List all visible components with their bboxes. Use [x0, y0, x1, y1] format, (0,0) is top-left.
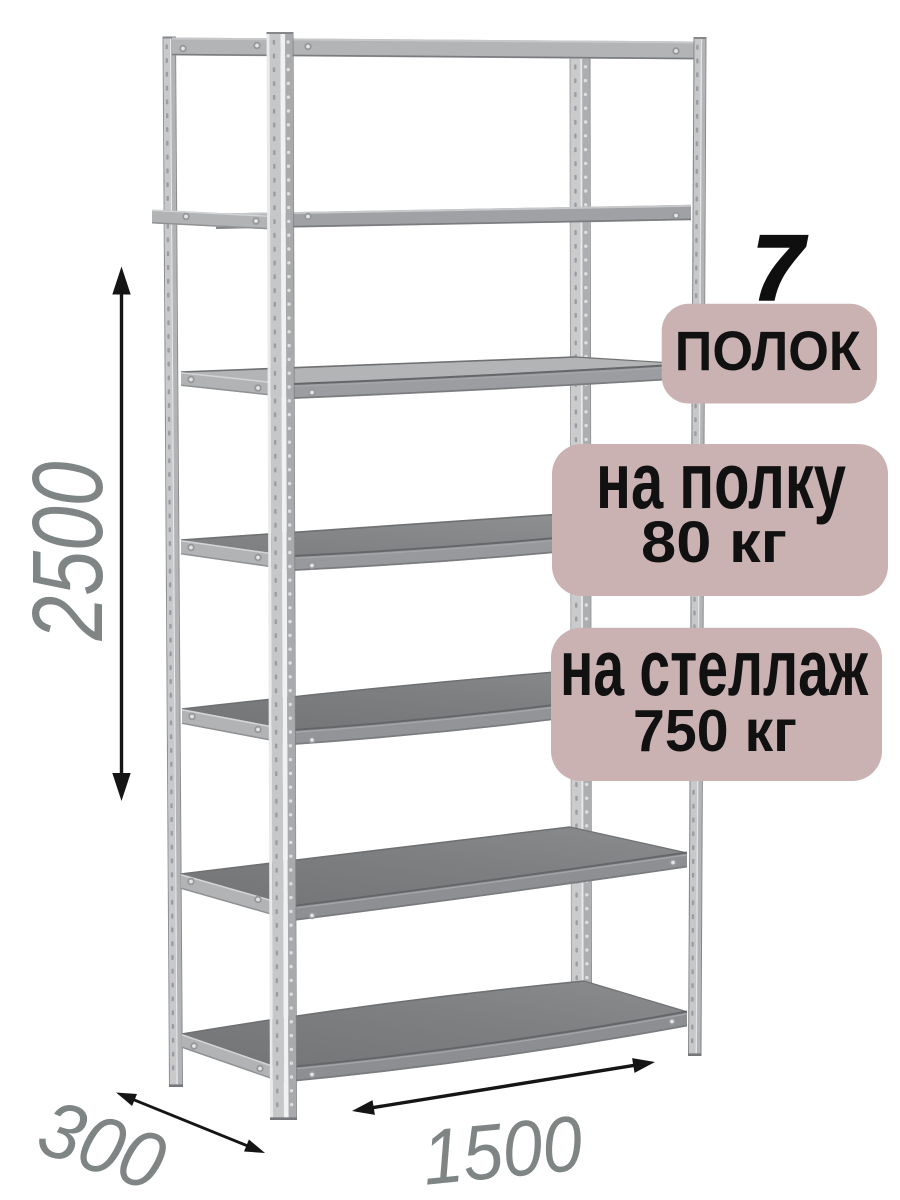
svg-text:ПОЛОК: ПОЛОК	[675, 319, 862, 382]
svg-text:750 кг: 750 кг	[633, 698, 797, 764]
svg-text:2500: 2500	[12, 462, 124, 642]
svg-text:1500: 1500	[418, 1099, 586, 1200]
svg-text:80 кг: 80 кг	[641, 510, 787, 575]
